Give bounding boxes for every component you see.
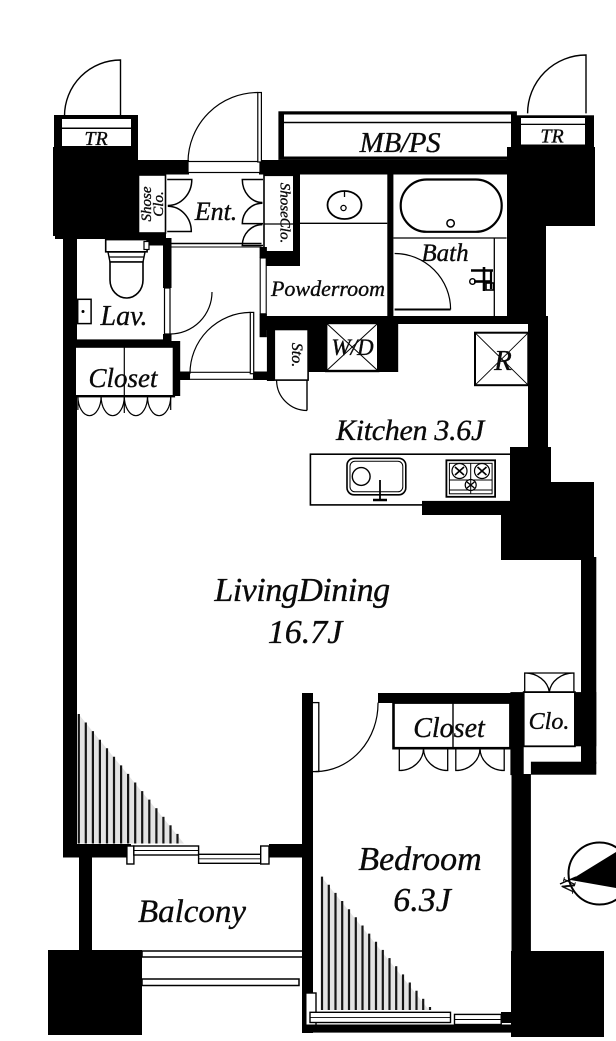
svg-text:W/D: W/D (331, 335, 374, 360)
svg-text:Clo.: Clo. (529, 709, 570, 735)
svg-text:Bedroom: Bedroom (358, 841, 481, 878)
svg-text:Kitchen 3.6J: Kitchen 3.6J (335, 414, 486, 447)
svg-text:R: R (493, 345, 512, 377)
svg-text:Ent.: Ent. (194, 197, 238, 226)
svg-text:Lav.: Lav. (100, 301, 148, 332)
svg-text:TR: TR (84, 128, 107, 150)
svg-text:LivingDining: LivingDining (213, 572, 389, 609)
svg-text:16.7J: 16.7J (268, 614, 345, 651)
svg-text:Closet: Closet (88, 363, 159, 393)
svg-text:Bath: Bath (421, 240, 468, 267)
svg-text:6.3J: 6.3J (393, 882, 453, 919)
svg-text:Sto.: Sto. (288, 343, 305, 367)
svg-text:Closet: Closet (413, 713, 486, 744)
svg-text:Powderroom: Powderroom (270, 276, 385, 301)
svg-text:MB/PS: MB/PS (359, 127, 441, 159)
svg-text:Balcony: Balcony (138, 894, 246, 930)
svg-text:TR: TR (540, 126, 563, 148)
svg-text:ShoseClo.: ShoseClo. (277, 183, 293, 243)
svg-text:Clo.: Clo. (151, 191, 167, 216)
